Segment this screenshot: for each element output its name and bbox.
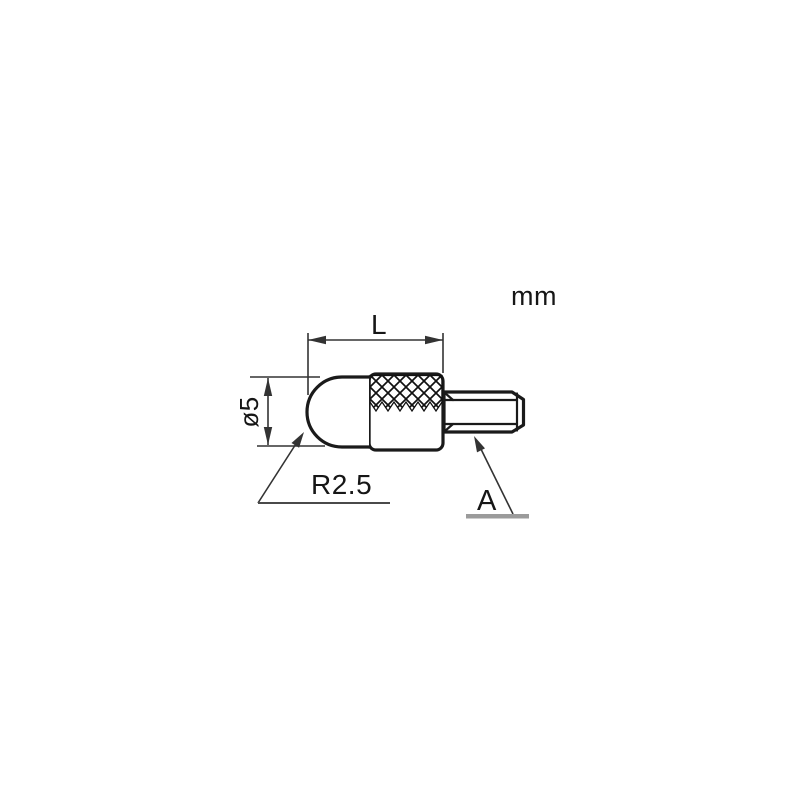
surface-ref-label: A [477, 487, 497, 516]
technical-drawing-canvas: mm L ø5 R2.5 A [0, 0, 800, 800]
part-drawing [0, 0, 800, 800]
length-dim-label: L [369, 311, 389, 339]
diameter-dim-label: ø5 [231, 394, 267, 430]
threaded-stud [444, 392, 524, 432]
units-label: mm [511, 283, 557, 310]
surface-leader [466, 436, 529, 519]
radius-dim-label: R2.5 [311, 471, 372, 499]
knurled-body [369, 374, 443, 450]
probe-tip-dome [307, 377, 369, 447]
